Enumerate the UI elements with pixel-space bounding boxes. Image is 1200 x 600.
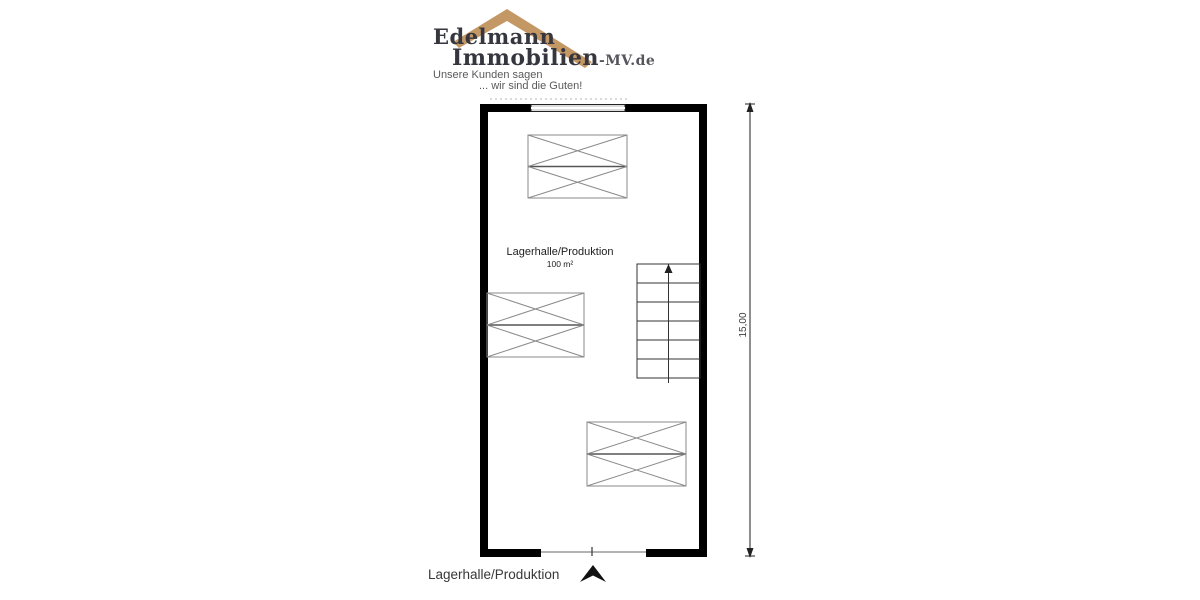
outer-walls [480,104,707,557]
window-symbol [531,105,625,112]
dimension-value-label: 15,00 [738,304,750,346]
wall-bottom-right-segment [646,549,707,557]
storage-rack-bottom [587,422,686,486]
plan-title-label: Lagerhalle/Produktion [428,567,559,583]
storage-rack-left [487,293,584,357]
north-arrow-icon [580,565,606,582]
wall-top-right-segment [625,104,707,112]
wall-bottom-left-segment [480,549,541,557]
stair-up-arrow-icon [665,264,673,273]
wall-top-left-segment [480,104,531,112]
floor-plan-drawing [0,0,1200,600]
storage-rack-top [528,135,627,198]
room-area-label: 100 m² [480,259,640,269]
gate-opening [541,547,646,556]
floor-plan-page: Edelmann Immobilien-MV.de Unsere Kunden … [0,0,1200,600]
staircase [637,264,700,383]
room-label: Lagerhalle/Produktion [480,246,640,259]
